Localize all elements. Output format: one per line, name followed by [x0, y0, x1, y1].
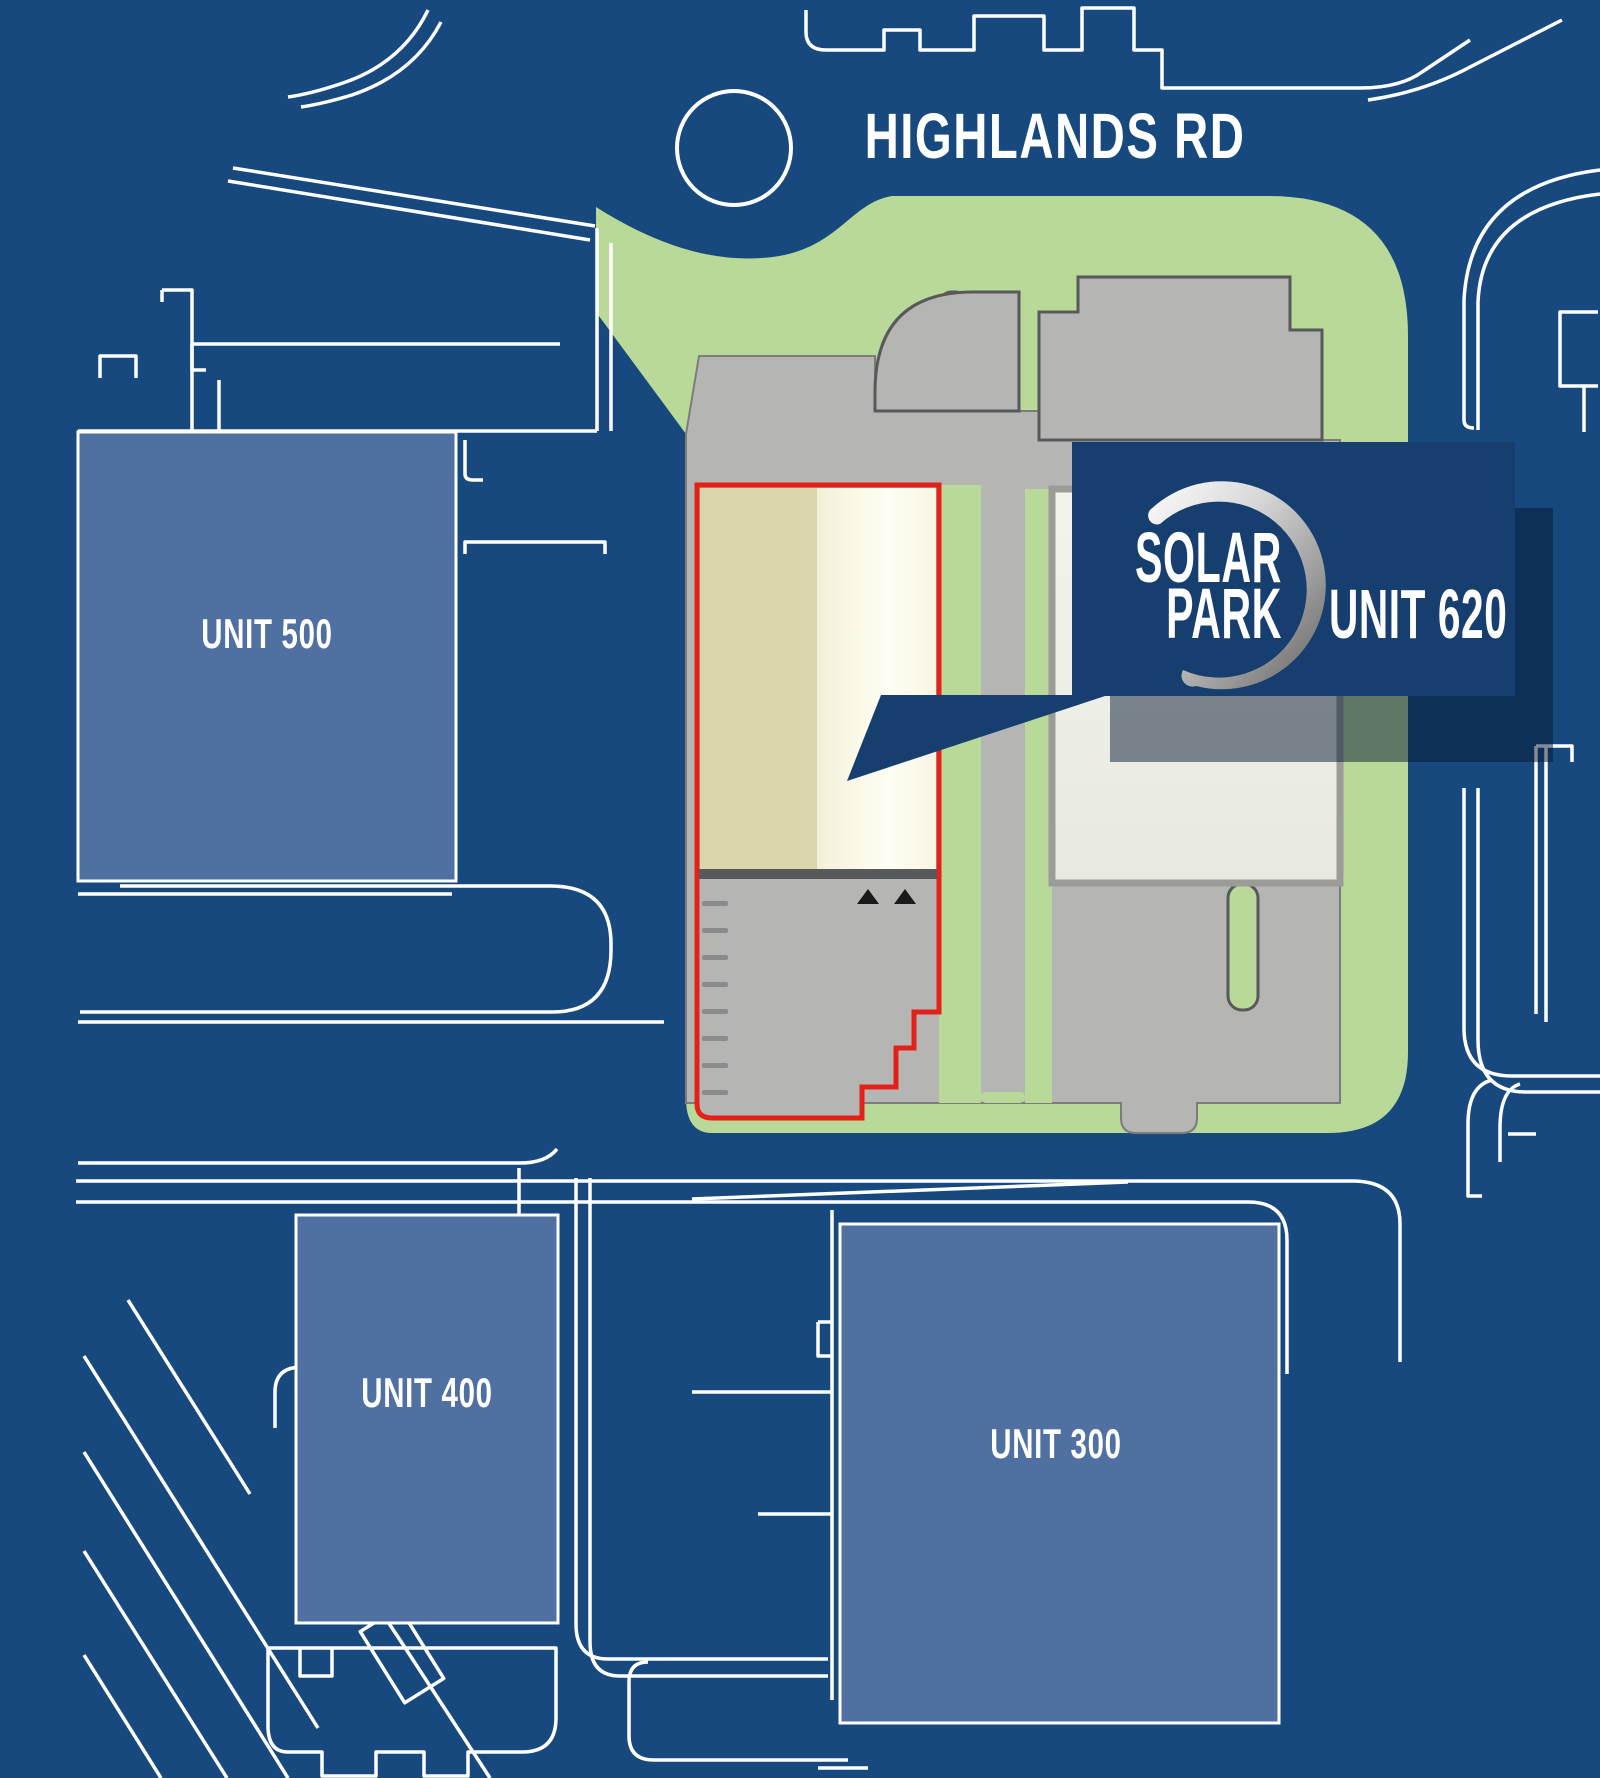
unit-400-parcel: UNIT 400: [296, 1215, 558, 1623]
road-label-highlands: HIGHLANDS RD: [865, 100, 1246, 172]
unit-620-parcel[interactable]: [697, 485, 939, 1118]
unit-500-label: UNIT 500: [201, 610, 332, 658]
callout-brand-park: PARK: [1166, 574, 1282, 654]
site-plan-map: UNIT 500: [0, 0, 1600, 1778]
unit-300-building[interactable]: [840, 1224, 1279, 1723]
unit-400-label: UNIT 400: [361, 1369, 492, 1417]
unit-300-label: UNIT 300: [990, 1420, 1121, 1468]
unit-400-building[interactable]: [296, 1215, 558, 1623]
unit-620-building-east: [817, 488, 936, 869]
unit-620-dock-edge: [699, 869, 937, 879]
unit-620-building-west: [700, 488, 817, 869]
callout-unit-label: UNIT 620: [1329, 576, 1507, 654]
site-plan-svg: UNIT 500: [0, 0, 1600, 1778]
unit-300-parcel: UNIT 300: [840, 1224, 1279, 1723]
